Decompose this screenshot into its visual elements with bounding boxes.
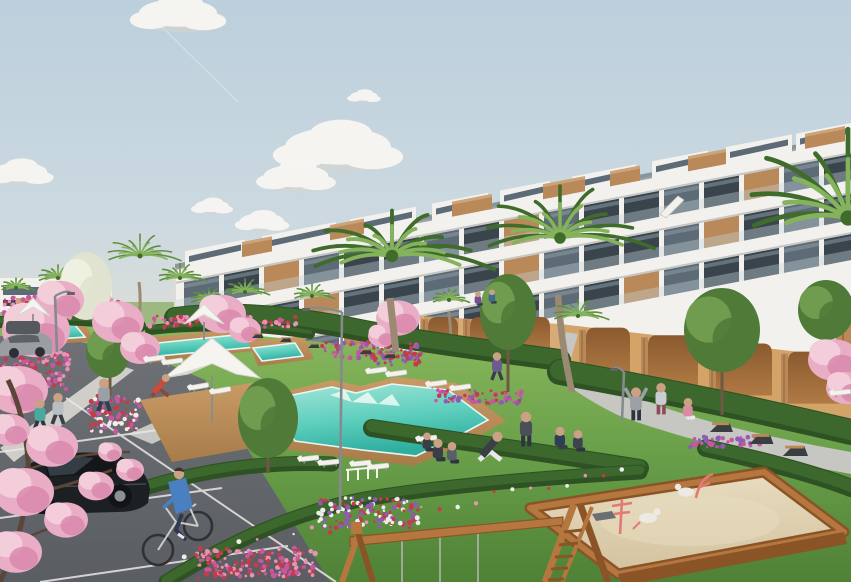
flower bbox=[56, 360, 61, 365]
flower bbox=[310, 564, 315, 569]
spring-rider bbox=[675, 474, 713, 498]
palm-frond bbox=[180, 276, 194, 278]
palm-frond bbox=[140, 236, 154, 256]
palm-frond bbox=[233, 292, 245, 294]
person-sitting bbox=[573, 430, 585, 451]
flower bbox=[49, 370, 53, 374]
flower bbox=[2, 376, 5, 379]
flower bbox=[346, 516, 350, 520]
flower bbox=[302, 551, 305, 554]
flower bbox=[279, 547, 282, 550]
flower bbox=[31, 352, 36, 357]
flower bbox=[444, 396, 447, 399]
flower-bed bbox=[316, 496, 420, 530]
flower bbox=[384, 361, 387, 364]
person-head bbox=[631, 387, 641, 397]
palm-frond bbox=[198, 298, 209, 300]
blossom-tree bbox=[376, 300, 420, 335]
umbrella-canopy-shade bbox=[184, 315, 204, 325]
flower bbox=[275, 573, 278, 576]
penthouse-box bbox=[185, 240, 245, 270]
flower bbox=[203, 553, 205, 555]
flower bbox=[220, 573, 224, 577]
lounger-back bbox=[349, 460, 356, 467]
flower bbox=[116, 399, 120, 403]
tree-canopy bbox=[80, 276, 109, 310]
person-head bbox=[555, 427, 564, 436]
hedge-flower bbox=[274, 543, 276, 545]
flower bbox=[277, 553, 281, 557]
main-pool bbox=[268, 384, 488, 456]
sandbox-frame bbox=[530, 472, 844, 574]
flower bbox=[263, 319, 268, 324]
flower bbox=[235, 571, 240, 576]
flower bbox=[266, 556, 271, 561]
flower bbox=[293, 549, 297, 553]
palm-frond bbox=[560, 222, 590, 238]
flower bbox=[241, 559, 244, 562]
palm-frond bbox=[820, 310, 834, 312]
flower bbox=[29, 315, 32, 318]
flower bbox=[405, 500, 408, 503]
flower bbox=[729, 438, 734, 443]
flower bbox=[213, 562, 216, 565]
wood-slat-panel bbox=[744, 168, 779, 201]
flower bbox=[704, 435, 708, 439]
flower bbox=[107, 423, 111, 427]
flower bbox=[698, 438, 701, 441]
flower bbox=[263, 325, 266, 328]
flower bbox=[338, 522, 343, 527]
bench-body bbox=[359, 349, 372, 354]
flower bbox=[1, 365, 5, 369]
flower bbox=[156, 315, 159, 318]
flower bbox=[481, 392, 483, 394]
palm-frond bbox=[8, 284, 16, 288]
flower-bed bbox=[370, 352, 422, 366]
flower bbox=[99, 430, 103, 434]
sun-lounger bbox=[208, 385, 231, 397]
palm-frond bbox=[544, 214, 560, 238]
flower bbox=[50, 354, 53, 357]
flower bbox=[385, 351, 389, 355]
palm-frond bbox=[313, 246, 392, 256]
flower bbox=[66, 360, 71, 365]
palm-frond bbox=[245, 291, 270, 295]
flower bbox=[401, 358, 404, 361]
flower bbox=[360, 518, 363, 521]
flower bbox=[455, 398, 458, 401]
flower bbox=[505, 400, 508, 403]
flower bbox=[3, 357, 8, 362]
lounger-bed bbox=[389, 370, 407, 377]
palm-frond bbox=[226, 289, 245, 292]
flower bbox=[27, 316, 30, 319]
blossom-highlight bbox=[0, 414, 15, 434]
flower bbox=[330, 508, 334, 512]
flower bbox=[272, 573, 277, 578]
rooftop-wood-box bbox=[805, 126, 845, 149]
cloud-puff bbox=[298, 175, 336, 190]
balcony-window bbox=[824, 232, 851, 265]
palm-frond bbox=[312, 295, 335, 298]
palm-tree bbox=[487, 186, 654, 392]
flower bbox=[47, 301, 51, 305]
palm-tree bbox=[433, 289, 469, 360]
flower-bed bbox=[147, 314, 298, 330]
hedge-flower bbox=[474, 501, 478, 505]
balcony-window bbox=[344, 245, 379, 278]
ground-floor-arcade bbox=[420, 300, 851, 430]
flower bbox=[87, 303, 90, 306]
balcony-window bbox=[664, 223, 699, 256]
flower bbox=[135, 427, 138, 430]
window-reflection bbox=[744, 210, 779, 221]
flower bbox=[219, 566, 222, 569]
blossom-highlight bbox=[809, 339, 840, 365]
flower bbox=[132, 419, 135, 422]
cloud-puff bbox=[130, 11, 171, 29]
cloud bbox=[235, 210, 290, 232]
flower bbox=[264, 572, 267, 575]
hedge-highlight bbox=[706, 446, 851, 486]
flower bbox=[98, 413, 101, 416]
flower bbox=[17, 310, 21, 314]
flower bbox=[749, 444, 753, 448]
arcade-arch bbox=[516, 317, 550, 353]
flower bbox=[38, 349, 42, 353]
feature-palms bbox=[313, 186, 654, 392]
arcade-arch bbox=[586, 328, 630, 380]
flower bbox=[116, 395, 120, 399]
palm-frond bbox=[315, 254, 392, 266]
flower bbox=[711, 438, 714, 441]
palm-frond bbox=[122, 247, 140, 256]
flower bbox=[229, 550, 232, 553]
lounger-back bbox=[161, 358, 168, 365]
person-leg bbox=[631, 409, 635, 421]
flower bbox=[390, 523, 393, 526]
person-yoga bbox=[479, 432, 503, 460]
street-lamp bbox=[610, 368, 624, 420]
cloud-shadow bbox=[266, 177, 334, 192]
palm-frond bbox=[449, 300, 463, 302]
lounger-bed bbox=[453, 384, 471, 391]
flower bbox=[504, 396, 509, 401]
flower bbox=[377, 520, 380, 523]
palm-frond bbox=[245, 286, 257, 292]
flower bbox=[97, 403, 102, 408]
flower bbox=[434, 399, 438, 403]
flower bbox=[57, 377, 62, 382]
flower bbox=[76, 306, 81, 311]
flower bbox=[12, 307, 16, 311]
flower bbox=[359, 345, 364, 350]
palm-frond bbox=[440, 296, 449, 300]
palm-frond bbox=[209, 298, 220, 300]
palm-frond bbox=[209, 299, 224, 301]
blossom-tree bbox=[368, 325, 396, 347]
flower bbox=[374, 513, 377, 516]
flower bbox=[176, 322, 178, 324]
penthouse-window bbox=[189, 245, 241, 263]
flower bbox=[334, 526, 338, 530]
flower bbox=[344, 496, 348, 500]
balcony-window bbox=[704, 176, 739, 209]
flower bbox=[501, 391, 504, 394]
flower bbox=[203, 553, 207, 557]
flower bbox=[3, 301, 7, 305]
flower bbox=[113, 421, 118, 426]
flower bbox=[199, 559, 202, 562]
penthouse-window bbox=[656, 156, 704, 173]
flower bbox=[742, 442, 746, 446]
flower bbox=[31, 303, 34, 306]
flower bbox=[292, 546, 297, 551]
flower bbox=[324, 350, 327, 353]
palm-frond bbox=[245, 284, 251, 292]
palm-frond bbox=[578, 315, 598, 318]
flower bbox=[182, 318, 184, 320]
flower bbox=[2, 313, 5, 316]
penthouse-window bbox=[730, 139, 788, 158]
flower bbox=[269, 321, 273, 325]
person-jogger bbox=[52, 393, 63, 424]
lounger-bed bbox=[165, 358, 183, 365]
flower bbox=[336, 346, 339, 349]
tree-canopy-light bbox=[61, 259, 92, 296]
flower bbox=[48, 303, 53, 308]
flower bbox=[388, 511, 391, 514]
white-blossom-tree bbox=[60, 252, 112, 320]
foreground bbox=[0, 380, 144, 582]
blossom-canopy bbox=[44, 502, 88, 537]
lounger-back bbox=[297, 455, 304, 462]
hedge-flower bbox=[584, 474, 587, 477]
penthouse-box bbox=[350, 207, 416, 238]
cyclist bbox=[143, 468, 212, 565]
flower bbox=[333, 505, 338, 510]
flower bbox=[66, 296, 69, 299]
distant-buildings bbox=[0, 278, 180, 338]
person-torso bbox=[475, 296, 481, 303]
flower bbox=[363, 511, 367, 515]
vehicles bbox=[0, 321, 150, 514]
window-reflection bbox=[664, 225, 699, 236]
flower bbox=[215, 554, 220, 559]
garden-bench bbox=[252, 334, 264, 338]
flower bbox=[359, 504, 363, 508]
flower bbox=[14, 355, 16, 357]
flower bbox=[470, 398, 474, 402]
flower bbox=[356, 355, 361, 360]
tree-canopy bbox=[480, 274, 536, 350]
spring-rider bbox=[612, 500, 661, 534]
glass-balustrade bbox=[175, 170, 851, 310]
flower bbox=[254, 562, 259, 567]
flower bbox=[109, 298, 113, 302]
flower bbox=[101, 409, 105, 413]
flower bbox=[384, 512, 388, 516]
bench-body bbox=[252, 334, 264, 338]
flower bbox=[277, 317, 282, 322]
balcony-window bbox=[424, 229, 459, 262]
lap-pool-b-deck bbox=[248, 336, 314, 366]
palm-frond bbox=[16, 279, 22, 288]
flower bbox=[353, 523, 358, 528]
flower bbox=[255, 324, 259, 328]
flower bbox=[97, 401, 102, 406]
flower bbox=[87, 408, 90, 411]
flower bbox=[64, 387, 68, 391]
flower bbox=[0, 353, 4, 357]
flower bbox=[195, 552, 199, 556]
balcony-window bbox=[384, 277, 419, 310]
palm-frond bbox=[573, 308, 578, 316]
flower bbox=[519, 389, 524, 394]
flower bbox=[415, 364, 418, 367]
flower bbox=[365, 340, 370, 345]
flower bbox=[4, 298, 6, 300]
flower bbox=[54, 352, 57, 355]
palm-frond bbox=[234, 287, 245, 292]
flower bbox=[270, 569, 274, 573]
cloud bbox=[0, 158, 54, 185]
flower bbox=[120, 399, 123, 402]
cloud bbox=[273, 120, 403, 173]
flower bbox=[199, 559, 202, 562]
flower bbox=[28, 364, 30, 366]
flower bbox=[105, 396, 108, 399]
flower bbox=[336, 351, 339, 354]
wood-slat-panel bbox=[344, 325, 379, 358]
person-torso bbox=[433, 446, 443, 458]
lap-pool-a-deck bbox=[136, 327, 270, 363]
flower bbox=[463, 394, 466, 397]
flower bbox=[282, 569, 287, 574]
flower bbox=[4, 372, 6, 374]
flower bbox=[3, 388, 5, 390]
palm-frond bbox=[16, 284, 25, 288]
flower bbox=[56, 354, 59, 357]
flower bbox=[355, 524, 358, 527]
wood-slat-panel bbox=[264, 260, 299, 293]
flower bbox=[300, 566, 303, 569]
penthouse-window bbox=[354, 212, 412, 231]
person-head bbox=[53, 393, 63, 403]
flower bbox=[371, 502, 376, 507]
flower bbox=[118, 421, 121, 424]
cloud-puff bbox=[341, 144, 403, 169]
palm-frond bbox=[754, 214, 848, 226]
flower bbox=[106, 298, 110, 302]
flower bbox=[512, 400, 515, 403]
flower bbox=[236, 321, 241, 326]
balcony-window bbox=[304, 332, 339, 365]
flower bbox=[30, 377, 35, 382]
flower bbox=[294, 321, 298, 325]
wood-slat-panel bbox=[624, 271, 659, 304]
flower bbox=[262, 322, 264, 324]
flower bbox=[222, 576, 226, 580]
flower bbox=[318, 501, 323, 506]
sun-lounger bbox=[142, 353, 165, 365]
cloud-shadow bbox=[241, 222, 288, 232]
palm-frond bbox=[52, 269, 58, 278]
flower bbox=[413, 502, 418, 507]
flower bbox=[282, 566, 286, 570]
palm-frond bbox=[233, 290, 245, 292]
flower bbox=[97, 426, 99, 428]
palm-trunk bbox=[449, 312, 451, 360]
flower bbox=[208, 557, 213, 562]
flower bbox=[37, 315, 42, 320]
flower bbox=[389, 350, 393, 354]
palm-frond bbox=[16, 288, 28, 290]
palm-frond bbox=[58, 270, 64, 278]
flower bbox=[109, 415, 114, 420]
flower bbox=[184, 317, 189, 322]
umbrella-deck bbox=[140, 382, 298, 462]
blossom-shade bbox=[11, 384, 44, 411]
garden-bench bbox=[359, 349, 372, 354]
flower bbox=[415, 355, 419, 359]
bench-body bbox=[783, 446, 808, 456]
palm-frond bbox=[47, 273, 58, 278]
flower bbox=[740, 436, 743, 439]
flower bbox=[13, 371, 17, 375]
person-head bbox=[35, 399, 45, 409]
hedge-flower bbox=[510, 487, 514, 491]
flower bbox=[386, 517, 389, 520]
palm-frond bbox=[813, 302, 820, 312]
person-arms-up bbox=[625, 388, 647, 399]
palm-frond bbox=[803, 303, 820, 312]
flower bbox=[116, 405, 119, 408]
palm-frond bbox=[306, 288, 312, 296]
balcony-window bbox=[224, 268, 259, 301]
balcony-window bbox=[544, 206, 579, 239]
flower bbox=[336, 526, 339, 529]
flower bbox=[398, 521, 403, 526]
flower bbox=[234, 561, 238, 565]
window-reflection bbox=[464, 224, 499, 235]
flower bbox=[721, 436, 725, 440]
flower bbox=[97, 417, 100, 420]
flower bbox=[24, 308, 27, 311]
flower bbox=[17, 303, 20, 306]
flower bbox=[388, 515, 393, 520]
flower bbox=[33, 365, 38, 370]
palm-frond bbox=[140, 255, 181, 261]
palm-frond bbox=[58, 277, 83, 281]
balcony-window bbox=[464, 222, 499, 255]
person-child bbox=[475, 291, 483, 305]
flower bbox=[726, 440, 729, 443]
palm-frond bbox=[555, 315, 578, 318]
palm-crown-center bbox=[818, 310, 822, 314]
window-reflection bbox=[584, 241, 619, 252]
flower bbox=[89, 399, 94, 404]
blossom-highlight bbox=[0, 468, 32, 498]
palm-frond bbox=[392, 215, 428, 256]
tree-canopy bbox=[86, 326, 130, 378]
palm-tree bbox=[108, 234, 180, 330]
palm-frond bbox=[120, 255, 140, 258]
balcony-window bbox=[544, 286, 579, 319]
window-reflection bbox=[664, 265, 699, 276]
flower bbox=[215, 564, 219, 568]
